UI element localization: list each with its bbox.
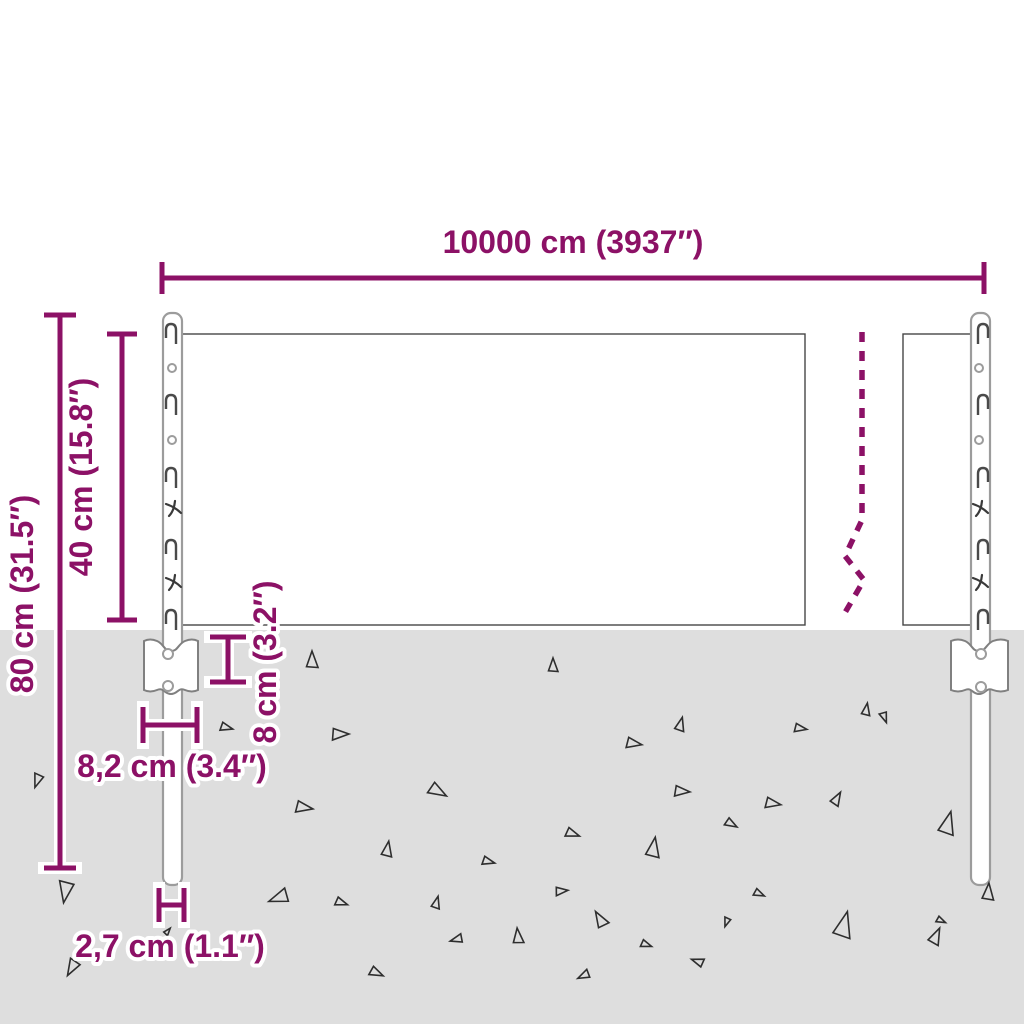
post-width-label: 2,7 cm (1.1″)	[75, 928, 265, 964]
right-post-hole	[975, 364, 983, 372]
right-plate-hole	[976, 649, 986, 659]
left-plate-hole	[163, 649, 173, 659]
left-post-hole	[168, 436, 176, 444]
total-width-label: 10000 cm (3937″)	[443, 224, 704, 260]
break-line	[843, 332, 864, 616]
anchor-width-label: 8,2 cm (3.4″)	[77, 748, 267, 784]
right-plate-hole	[976, 682, 986, 692]
mesh-height-label: 40 cm (15.8″)	[63, 378, 99, 577]
total-height-label: 80 cm (31.5″)	[4, 495, 40, 694]
anchor-depth-label: 8 cm (3.2″)	[247, 581, 283, 744]
left-plate-hole	[163, 681, 173, 691]
diagram-canvas: 10000 cm (3937″) 40 cm (15.8″) 80 cm (31…	[0, 0, 1024, 1024]
left-post-hole	[168, 364, 176, 372]
fence-dimension-diagram: 10000 cm (3937″) 40 cm (15.8″) 80 cm (31…	[0, 0, 1024, 1024]
right-post-hole	[975, 436, 983, 444]
mesh-panel-right	[903, 334, 971, 625]
